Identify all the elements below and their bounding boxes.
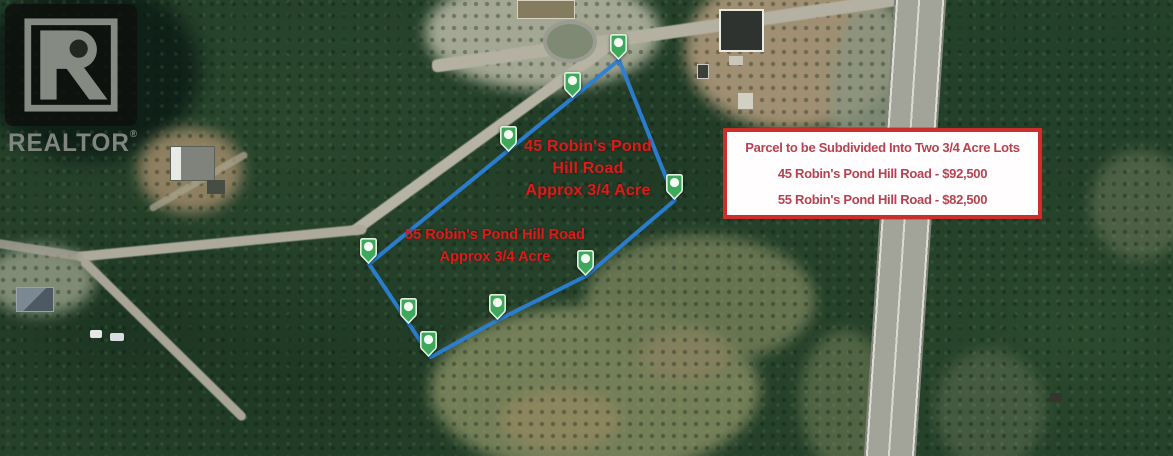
map-pin-icon — [399, 297, 418, 324]
terrain-marsh-tan-spot-2 — [640, 330, 730, 380]
map-pin-icon — [563, 71, 582, 98]
parcel-label-line: 55 Robin's Pond Hill Road — [390, 224, 600, 246]
terrain-forest-right-of-highway — [935, 350, 1045, 456]
parcel-label-line: Hill Road — [500, 158, 676, 180]
structure-bottom-right — [1050, 393, 1062, 402]
building-top-right — [719, 9, 764, 52]
parcel-label-line: Approx 3/4 Acre — [390, 246, 600, 268]
realtor-watermark: REALTOR® — [3, 2, 143, 164]
building-top-center — [517, 0, 575, 19]
shed-top-right-1 — [729, 56, 743, 65]
house-bottom-left — [16, 287, 54, 312]
registered-mark: ® — [130, 128, 138, 142]
map-pin-icon — [419, 330, 438, 357]
shed-top-right-3 — [697, 64, 709, 79]
map-pin-icon — [359, 237, 378, 264]
terrain-field-right — [1090, 150, 1173, 260]
info-box-price-55: 55 Robin's Pond Hill Road - $82,500 — [778, 187, 987, 213]
realtor-r-icon — [23, 17, 119, 113]
parcel-label-line: 45 Robin's Pond — [500, 136, 676, 158]
pond-top-center — [543, 20, 597, 63]
info-box-title: Parcel to be Subdivided Into Two 3/4 Acr… — [745, 135, 1019, 161]
info-box-price-45: 45 Robin's Pond Hill Road - $92,500 — [778, 161, 987, 187]
road-south-branch — [79, 256, 248, 422]
terrain-marsh-tan-spot — [500, 390, 620, 450]
lot-55-label: 55 Robin's Pond Hill RoadApprox 3/4 Acre — [390, 224, 600, 268]
realtor-logo-box — [5, 4, 137, 126]
house-mid-left — [170, 146, 215, 181]
realtor-text: REALTOR — [8, 128, 130, 158]
info-box: Parcel to be Subdivided Into Two 3/4 Acr… — [723, 128, 1042, 219]
road-west — [76, 224, 368, 262]
realtor-wordmark: REALTOR® — [5, 128, 141, 158]
map-pin-icon — [609, 33, 628, 60]
lot-45-label: 45 Robin's PondHill RoadApprox 3/4 Acre — [500, 136, 676, 202]
map-pin-icon — [488, 293, 507, 320]
parcel-label-line: Approx 3/4 Acre — [500, 180, 676, 202]
shed-top-right-2 — [738, 93, 753, 109]
shed-mid-left — [207, 180, 225, 194]
vehicle-bottom-left-1 — [90, 330, 102, 338]
aerial-parcel-map: 45 Robin's PondHill RoadApprox 3/4 Acre … — [0, 0, 1173, 456]
vehicle-bottom-left-2 — [110, 333, 124, 341]
